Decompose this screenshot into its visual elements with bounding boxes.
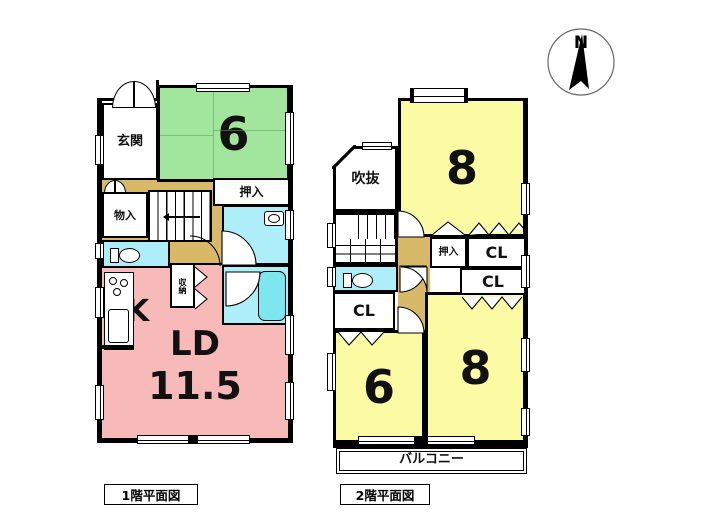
window — [285, 382, 294, 420]
folding-door-icon — [462, 297, 522, 309]
floor2-door-overlay — [338, 103, 523, 443]
door-arc-icon — [222, 231, 256, 265]
window-mullion — [188, 435, 198, 444]
door-arc-icon — [398, 307, 424, 333]
window — [95, 385, 104, 420]
sliding-window — [358, 436, 415, 445]
door-arc-icon — [226, 272, 260, 306]
window — [521, 338, 530, 372]
window — [521, 408, 530, 436]
door-arc-icon — [398, 211, 424, 237]
window — [327, 353, 336, 391]
floor1-plan: K LD 11.5 6 玄関 — [97, 85, 293, 443]
floorplan-canvas: K LD 11.5 6 玄関 — [0, 0, 705, 525]
window — [285, 210, 294, 240]
folding-door-icon — [432, 222, 465, 235]
window — [285, 315, 294, 355]
door-arc-icon — [190, 236, 220, 266]
balcony: バルコニー — [336, 448, 527, 474]
window — [95, 287, 104, 318]
floor2-plan: 8 吹抜 CL 6 8 押入 CL — [333, 98, 528, 448]
window-mullion — [415, 436, 427, 445]
window — [95, 243, 104, 259]
window — [95, 135, 104, 165]
window — [285, 112, 294, 165]
floor2-caption-label: 2階平面図 — [356, 485, 415, 504]
folding-door-icon — [469, 223, 524, 235]
folding-door-icon — [338, 332, 384, 345]
bay-window — [410, 88, 468, 103]
window — [521, 183, 530, 215]
compass: N — [543, 18, 619, 100]
balcony-label: バルコニー — [337, 453, 526, 466]
window — [196, 83, 250, 92]
window — [327, 223, 336, 248]
floor2-caption: 2階平面図 — [340, 484, 430, 505]
folding-door-icon — [195, 289, 207, 309]
sliding-window — [427, 436, 475, 445]
window — [362, 142, 392, 150]
folding-door-icon — [195, 267, 207, 287]
window — [327, 267, 336, 287]
floor1-caption: 1階平面図 — [104, 484, 198, 505]
window — [521, 255, 530, 288]
floor1-caption-label: 1階平面図 — [122, 485, 181, 504]
floor1-door-overlay — [102, 90, 288, 438]
